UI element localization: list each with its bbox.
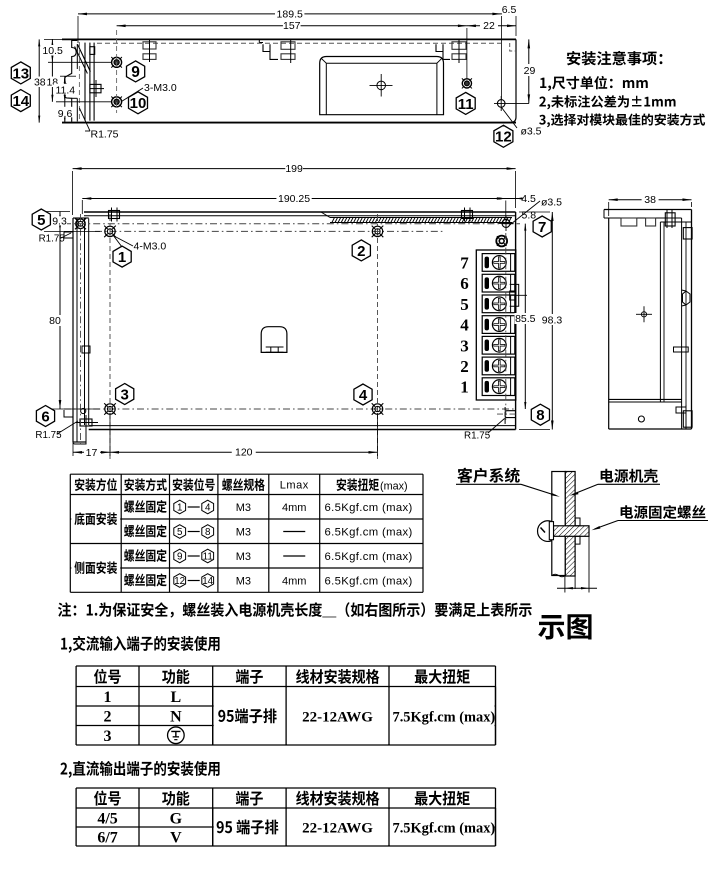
svg-text:29: 29 [524,65,536,77]
svg-text:11: 11 [458,96,474,113]
svg-text:12: 12 [495,129,512,146]
svg-text:3: 3 [460,336,469,355]
svg-text:14: 14 [202,576,213,587]
svg-text:R1.75: R1.75 [35,430,62,441]
svg-text:ø3.5: ø3.5 [541,197,562,209]
svg-text:N: N [170,709,182,726]
svg-text:9: 9 [177,551,182,562]
svg-text:14: 14 [12,93,29,110]
svg-text:3: 3 [121,386,129,403]
svg-text:4: 4 [460,316,469,335]
svg-text:10.5: 10.5 [42,45,63,57]
svg-text:5.8: 5.8 [522,210,537,222]
svg-text:13: 13 [12,65,29,82]
svg-text:M3: M3 [236,575,251,587]
svg-text:11: 11 [203,551,213,562]
svg-text:4/5: 4/5 [97,810,117,827]
svg-text:2: 2 [104,709,112,726]
svg-text:G: G [170,810,183,827]
svg-text:5: 5 [177,527,183,538]
svg-text:38: 38 [34,76,46,88]
svg-text:7: 7 [538,219,546,236]
svg-text:2: 2 [460,357,469,376]
svg-text:L: L [171,689,182,706]
svg-text:4: 4 [359,387,368,404]
svg-text:7.5Kgf.cm (max): 7.5Kgf.cm (max) [393,709,496,725]
svg-text:8: 8 [205,527,211,538]
svg-text:1: 1 [104,689,112,706]
svg-text:2: 2 [357,243,365,260]
svg-text:M3: M3 [236,526,251,538]
svg-text:98.3: 98.3 [542,315,563,327]
svg-text:7: 7 [460,253,469,272]
svg-text:R1.75: R1.75 [39,234,66,245]
svg-text:R1.75: R1.75 [464,431,491,442]
svg-text:6/7: 6/7 [97,829,117,846]
svg-text:22: 22 [483,20,495,32]
svg-text:120: 120 [235,447,253,459]
svg-text:9.6: 9.6 [58,108,73,120]
svg-text:6.5Kgf.cm (max): 6.5Kgf.cm (max) [325,551,413,563]
svg-text:8: 8 [536,407,544,424]
svg-text:157: 157 [283,20,301,32]
svg-text:190.25: 190.25 [278,193,310,205]
svg-text:38: 38 [644,194,656,206]
svg-text:ø3.5: ø3.5 [521,126,542,138]
svg-text:6.5Kgf.cm (max): 6.5Kgf.cm (max) [325,502,413,514]
svg-text:1: 1 [118,249,126,266]
svg-text:4mm: 4mm [282,502,306,514]
svg-text:V: V [170,829,182,846]
svg-text:R1.75: R1.75 [91,129,119,141]
svg-text:22-12AWG: 22-12AWG [302,821,373,837]
svg-text:4.5: 4.5 [521,193,536,205]
svg-text:4: 4 [205,502,211,513]
svg-text:10: 10 [130,95,147,112]
svg-text:5: 5 [37,212,45,229]
svg-text:9.3: 9.3 [52,215,67,227]
svg-text:6: 6 [460,274,469,293]
svg-text:1: 1 [460,378,469,397]
svg-text:22-12AWG: 22-12AWG [302,709,373,725]
svg-text:4-M3.0: 4-M3.0 [134,241,167,253]
svg-text:199: 199 [285,163,303,175]
svg-text:Lmax: Lmax [280,480,309,492]
svg-text:7.5Kgf.cm (max): 7.5Kgf.cm (max) [393,821,496,837]
svg-text:9: 9 [131,64,140,81]
svg-text:4mm: 4mm [282,575,306,587]
svg-text:M3: M3 [236,502,251,514]
svg-text:6.5: 6.5 [502,4,517,16]
svg-text:12: 12 [174,576,185,587]
svg-text:11.4: 11.4 [55,84,75,96]
svg-text:1: 1 [177,502,182,513]
svg-text:6.5Kgf.cm (max): 6.5Kgf.cm (max) [325,575,413,587]
svg-text:6: 6 [41,408,49,425]
svg-text:85.5: 85.5 [515,313,536,325]
svg-text:5: 5 [460,295,469,314]
svg-text:3: 3 [104,728,112,745]
svg-text:80: 80 [49,315,61,327]
svg-text:17: 17 [86,447,98,459]
svg-text:6.5Kgf.cm (max): 6.5Kgf.cm (max) [325,526,413,538]
svg-text:3-M3.0: 3-M3.0 [144,82,177,94]
svg-text:(max): (max) [380,480,408,492]
svg-text:M3: M3 [236,551,251,563]
